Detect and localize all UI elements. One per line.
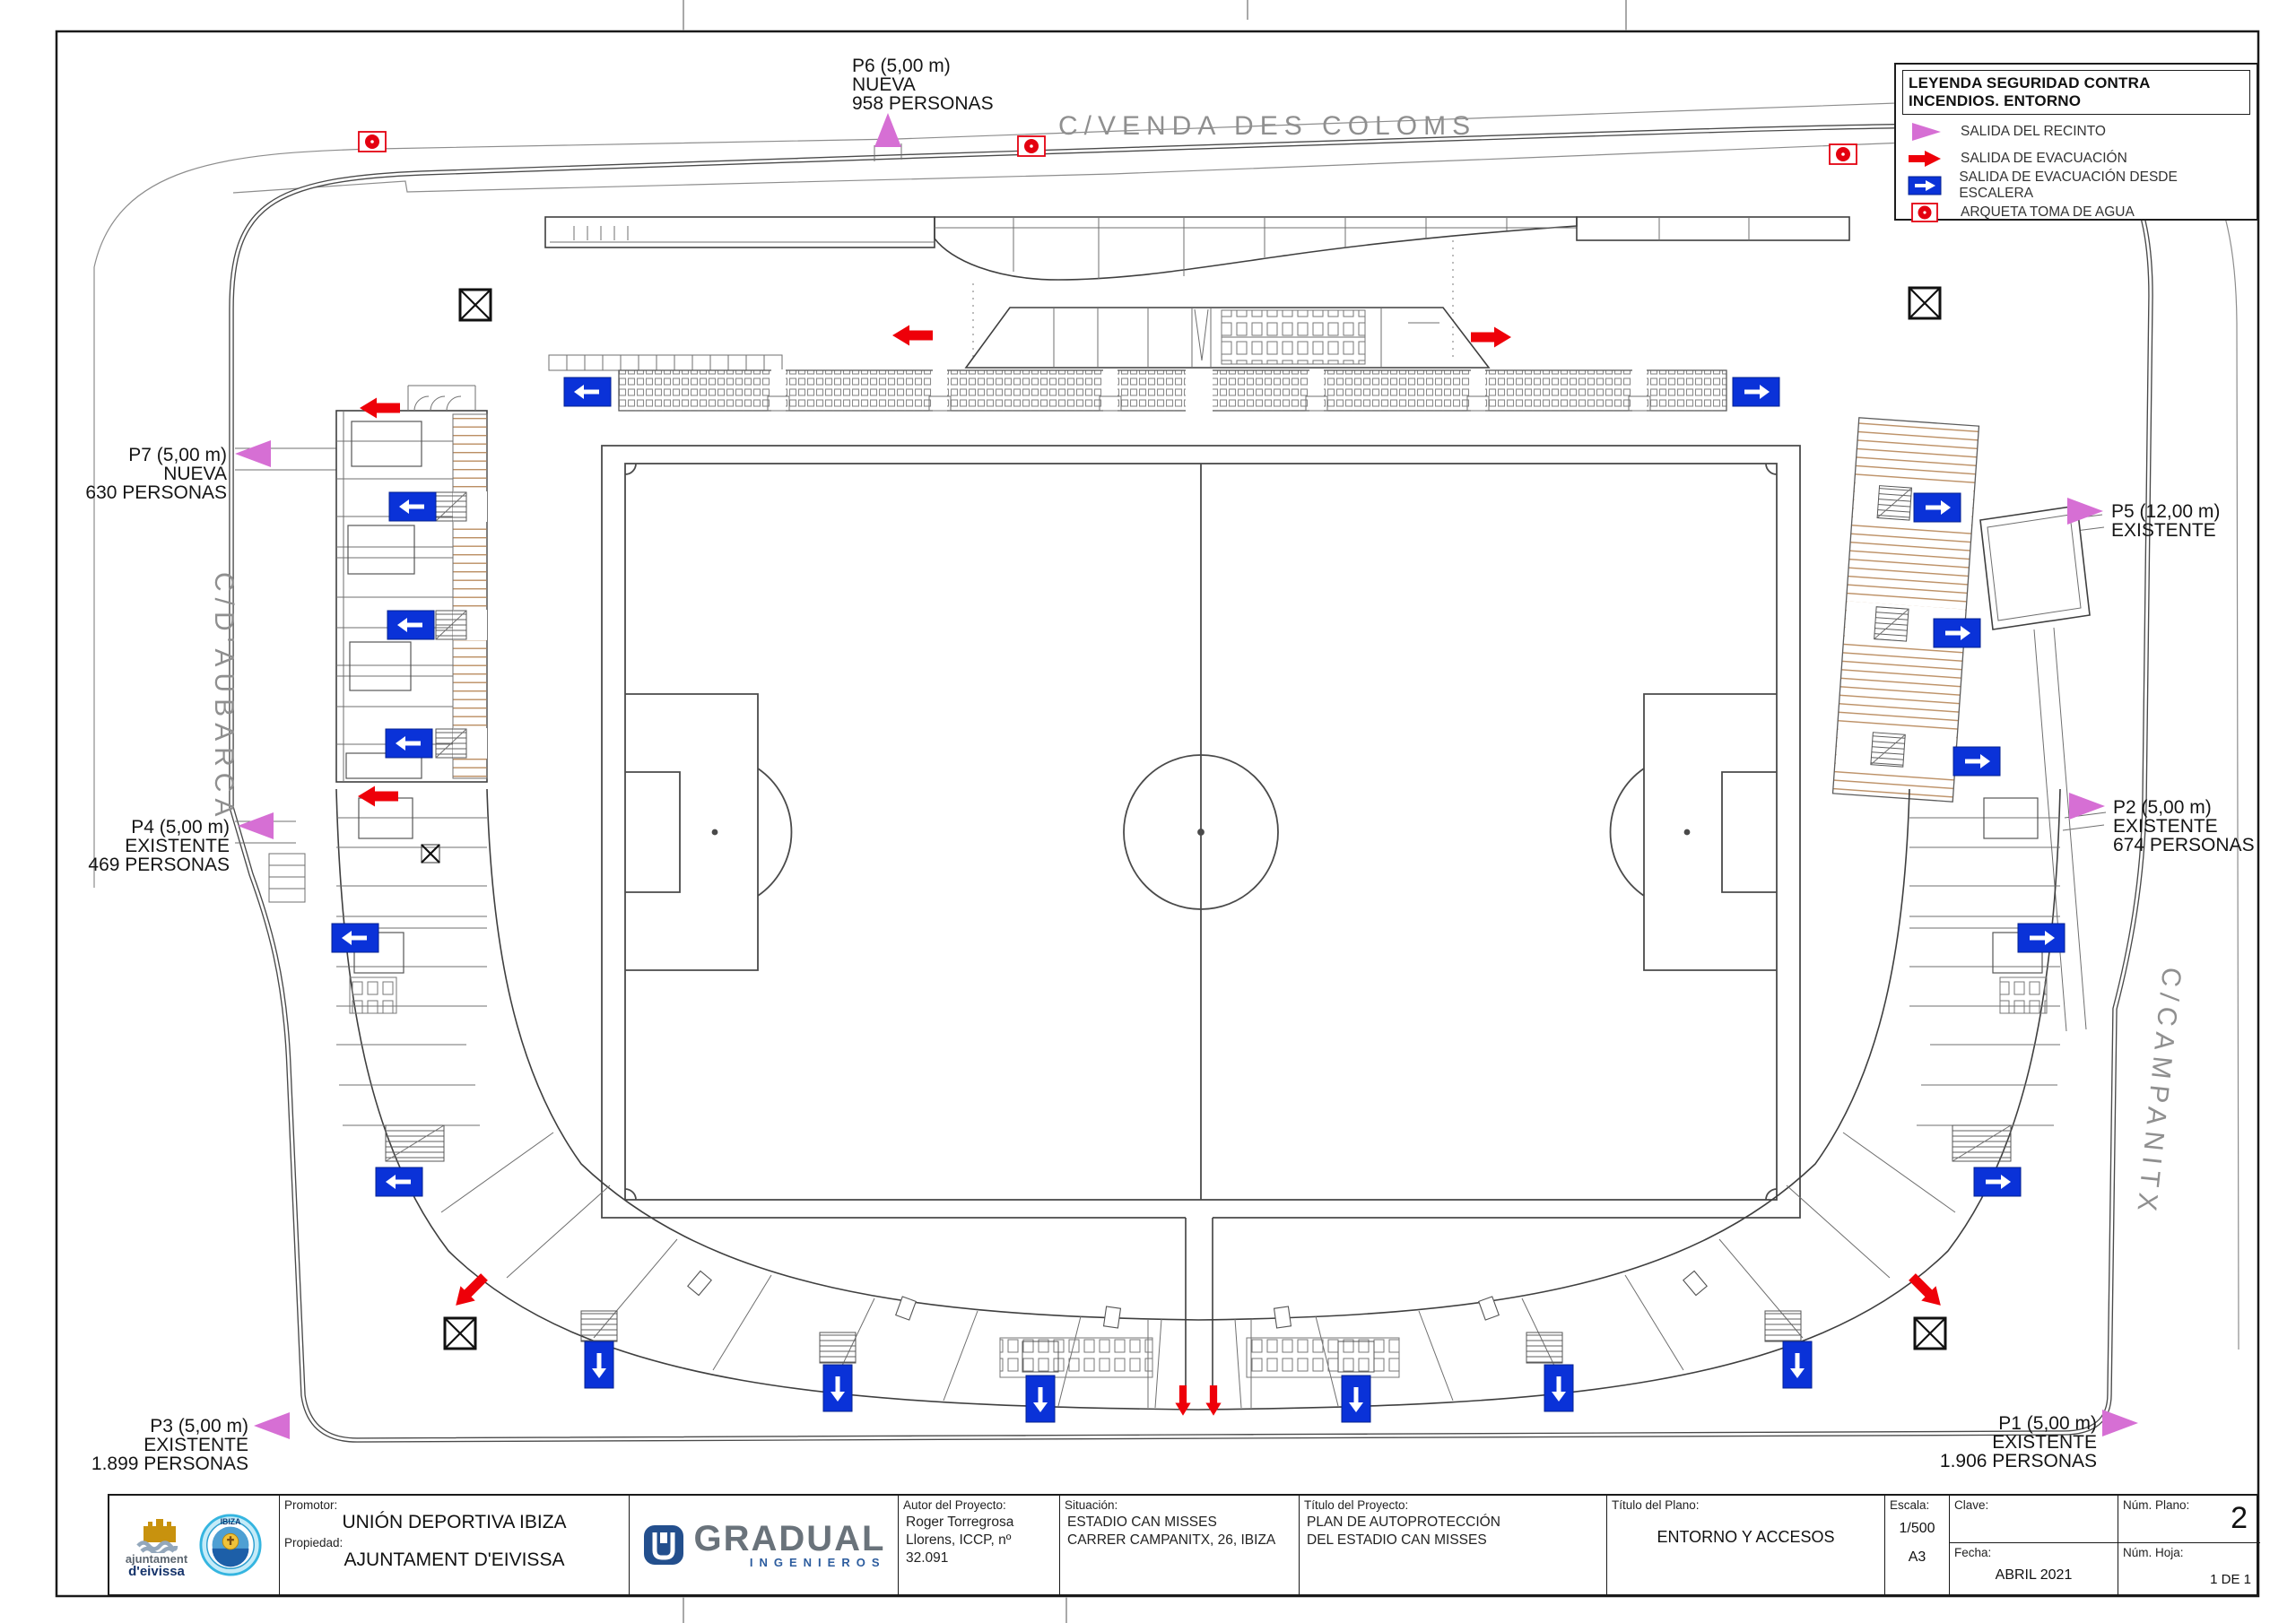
legend-item-label: ARQUETA TOMA DE AGUA bbox=[1961, 204, 2135, 221]
clave-fecha-cell: Clave: Fecha: ABRIL 2021 bbox=[1950, 1496, 2118, 1594]
evacuation-arrow-icon bbox=[1905, 147, 1961, 170]
west-stand bbox=[336, 386, 487, 782]
ibiza-logo: IBIZA bbox=[198, 1513, 263, 1577]
exit-label: P6 (5,00 m) bbox=[852, 56, 951, 76]
street-label-left: C/D'AUBARCA bbox=[209, 572, 239, 822]
ibiza-logo-text: IBIZA bbox=[221, 1517, 242, 1526]
situacion-cell: Situación: ESTADIO CAN MISSES CARRER CAM… bbox=[1060, 1496, 1300, 1594]
exit-label: P5 (12,00 m) bbox=[2111, 501, 2220, 522]
exit-label: NUEVA bbox=[852, 74, 916, 95]
exit-arrow-p6 bbox=[874, 113, 901, 147]
recinto-arrow-icon bbox=[1905, 120, 1961, 143]
arqueta-icon bbox=[359, 132, 386, 152]
exit-label: P1 (5,00 m) bbox=[1998, 1413, 2097, 1434]
fecha-value: ABRIL 2021 bbox=[1950, 1567, 2118, 1584]
legend-item-salida-recinto: SALIDA DEL RECINTO bbox=[1896, 118, 2257, 145]
legend-item-arqueta: ARQUETA TOMA DE AGUA bbox=[1896, 199, 2257, 226]
exit-label: P7 (5,00 m) bbox=[128, 445, 227, 465]
escala-value: 1/500 bbox=[1885, 1521, 1949, 1537]
penalty-area-right bbox=[1644, 694, 1777, 970]
plano-cell: Título del Plano: ENTORNO Y ACCESOS bbox=[1607, 1496, 1885, 1594]
num-hoja-value: 1 DE 1 bbox=[2210, 1572, 2251, 1587]
proyecto-label: Título del Proyecto: bbox=[1300, 1496, 1606, 1512]
exit-label: 1.899 PERSONAS bbox=[91, 1454, 248, 1474]
legend-item-salida-escalera: SALIDA DE EVACUACIÓN DESDE ESCALERA bbox=[1896, 172, 2257, 199]
proyecto-line2: DEL ESTADIO CAN MISSES bbox=[1307, 1532, 1487, 1548]
exit-label: 958 PERSONAS bbox=[852, 93, 994, 114]
exit-label: P4 (5,00 m) bbox=[131, 817, 230, 838]
legend-box: LEYENDA SEGURIDAD CONTRA INCENDIOS. ENTO… bbox=[1894, 63, 2258, 221]
legend-item-label: SALIDA DE EVACUACIÓN DESDE ESCALERA bbox=[1959, 169, 2248, 202]
num-plano-label: Núm. Plano: bbox=[2118, 1496, 2194, 1512]
autor-line2: Llorens, ICCP, nº 32.091 bbox=[906, 1532, 1011, 1566]
promotor-label: Promotor: bbox=[280, 1496, 629, 1512]
autor-line1: Roger Torregrosa bbox=[906, 1515, 1013, 1530]
autor-label: Autor del Proyecto: bbox=[899, 1496, 1059, 1512]
ajuntament-logo-text2: d'eivissa bbox=[128, 1566, 185, 1578]
exit-arrow-p4 bbox=[238, 812, 274, 839]
centre-spot bbox=[1198, 829, 1204, 835]
north-pavilion bbox=[966, 308, 1489, 368]
exit-label: 630 PERSONAS bbox=[85, 482, 227, 503]
formato-value: A3 bbox=[1885, 1549, 1949, 1566]
ajuntament-castle-icon bbox=[131, 1512, 183, 1553]
exit-arrow-p3 bbox=[254, 1412, 290, 1439]
propiedad-label: Propiedad: bbox=[280, 1533, 629, 1549]
plano-label: Título del Plano: bbox=[1607, 1496, 1884, 1512]
company-cell: GRADUAL INGENIEROS bbox=[630, 1496, 899, 1594]
exit-label: 469 PERSONAS bbox=[88, 855, 230, 875]
south-stand bbox=[336, 789, 2060, 1410]
exit-label: 674 PERSONAS bbox=[2113, 835, 2255, 855]
goal-area-left bbox=[625, 772, 680, 892]
proyecto-cell: Título del Proyecto: PLAN DE AUTOPROTECC… bbox=[1300, 1496, 1607, 1594]
company-name: GRADUAL bbox=[694, 1522, 886, 1556]
legend-title: LEYENDA SEGURIDAD CONTRA INCENDIOS. ENTO… bbox=[1902, 70, 2250, 115]
exit-label: P2 (5,00 m) bbox=[2113, 797, 2212, 818]
site-plan-drawing: C/VENDA DES COLOMS C/D'AUBARCA C/CAMPANI… bbox=[0, 0, 2296, 1623]
legend-item-label: SALIDA DEL RECINTO bbox=[1961, 124, 2106, 140]
football-pitch bbox=[602, 446, 1800, 1218]
stair-exit-box-icon bbox=[1905, 174, 1959, 197]
plano-value: ENTORNO Y ACCESOS bbox=[1607, 1528, 1884, 1547]
clave-label: Clave: bbox=[1950, 1496, 2118, 1512]
company-tagline: INGENIEROS bbox=[750, 1556, 886, 1569]
title-block-logos-cell: ajuntament d'eivissa IBIZA bbox=[109, 1496, 280, 1594]
num-hoja-label: Núm. Hoja: bbox=[2118, 1543, 2188, 1559]
escala-cell: Escala: 1/500 A3 bbox=[1885, 1496, 1950, 1594]
situacion-line1: ESTADIO CAN MISSES bbox=[1067, 1515, 1217, 1530]
num-plano-value: 2 bbox=[2231, 1501, 2248, 1536]
fecha-label: Fecha: bbox=[1950, 1543, 1996, 1559]
exit-label: EXISTENTE bbox=[143, 1435, 248, 1455]
situacion-label: Situación: bbox=[1060, 1496, 1299, 1512]
penalty-arc-right bbox=[1611, 768, 1644, 896]
exit-label: EXISTENTE bbox=[125, 836, 230, 856]
exit-arrow-p5 bbox=[2067, 498, 2103, 525]
situacion-line2: CARRER CAMPANITX, 26, IBIZA bbox=[1067, 1532, 1275, 1548]
exit-label: P3 (5,00 m) bbox=[150, 1416, 248, 1436]
stair-exit-boxes bbox=[332, 378, 2065, 1422]
propiedad-value: AJUNTAMENT D'EIVISSA bbox=[280, 1549, 629, 1571]
proyecto-line1: PLAN DE AUTOPROTECCIÓN bbox=[1307, 1515, 1500, 1530]
penalty-area-left bbox=[625, 694, 758, 970]
promotor-cell: Promotor: UNIÓN DEPORTIVA IBIZA Propieda… bbox=[280, 1496, 630, 1594]
exit-label: EXISTENTE bbox=[2113, 816, 2218, 837]
evacuation-arrows bbox=[358, 325, 1948, 1416]
arqueta-icon bbox=[1018, 136, 1045, 156]
north-building bbox=[545, 217, 1849, 359]
penalty-arc-left bbox=[758, 768, 791, 896]
drawing-sheet: C/VENDA DES COLOMS C/D'AUBARCA C/CAMPANI… bbox=[0, 0, 2296, 1623]
escala-label: Escala: bbox=[1885, 1496, 1949, 1512]
gradual-logo-icon bbox=[642, 1523, 685, 1567]
ajuntament-logo: ajuntament d'eivissa bbox=[126, 1512, 187, 1578]
street-label-right: C/CAMPANITX bbox=[2131, 966, 2187, 1219]
arqueta-icon bbox=[1905, 201, 1961, 224]
exit-arrow-p1 bbox=[2102, 1410, 2138, 1436]
legend-item-label: SALIDA DE EVACUACIÓN bbox=[1961, 151, 2127, 167]
arqueta-icon bbox=[1830, 144, 1857, 164]
exit-label: 1.906 PERSONAS bbox=[1940, 1451, 2097, 1471]
sheet-frame bbox=[57, 31, 2258, 1596]
title-block: ajuntament d'eivissa IBIZA Promotor: UNI… bbox=[108, 1494, 2258, 1596]
exit-label: NUEVA bbox=[163, 464, 227, 484]
access-gates bbox=[235, 143, 2106, 902]
exit-arrow-p2 bbox=[2069, 793, 2105, 820]
street-label-top: C/VENDA DES COLOMS bbox=[1058, 111, 1476, 141]
exit-arrow-p7 bbox=[235, 440, 271, 467]
exit-label: EXISTENTE bbox=[1992, 1432, 2097, 1453]
north-stand bbox=[549, 355, 1726, 412]
autor-cell: Autor del Proyecto: Roger Torregrosa Llo… bbox=[899, 1496, 1060, 1594]
legend-item-salida-evacuacion: SALIDA DE EVACUACIÓN bbox=[1896, 145, 2257, 172]
goal-area-right bbox=[1722, 772, 1777, 892]
floodlight-tower-symbols bbox=[445, 288, 1945, 1349]
exit-label: EXISTENTE bbox=[2111, 520, 2216, 541]
num-cell: Núm. Plano: 2 Núm. Hoja: 1 DE 1 bbox=[2118, 1496, 2260, 1594]
promotor-value: UNIÓN DEPORTIVA IBIZA bbox=[280, 1512, 629, 1533]
